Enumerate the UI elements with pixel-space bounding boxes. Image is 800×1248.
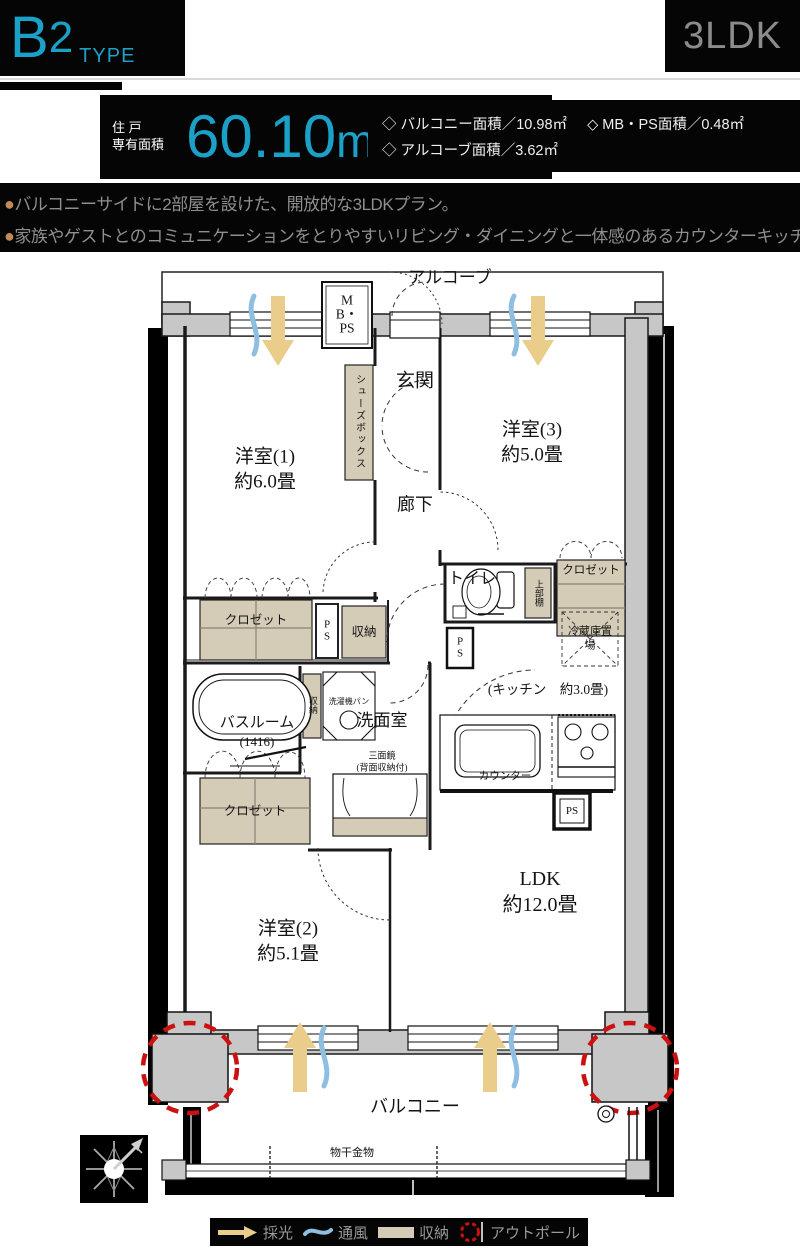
type-box: B 2 TYPE <box>0 0 185 76</box>
floorplan-svg <box>0 262 800 1212</box>
label-washroom: 洗面室 <box>357 710 408 732</box>
label-laundry-hw: 物干金物 <box>330 1146 374 1160</box>
label-toilet: トイレ <box>448 570 496 591</box>
label-shoes-box: シューズボックス <box>353 374 366 470</box>
feature-box: ●バルコニーサイドに2部屋を設けた、開放的な3LDKプラン。 ●家族やゲストとの… <box>0 183 800 252</box>
outpole-circle-icon <box>459 1220 485 1244</box>
type-box-tab <box>0 82 122 90</box>
type-num: 2 <box>49 16 73 60</box>
label-room2: 洋室(2)約5.1畳 <box>257 917 319 966</box>
legend-outpole: アウトポール <box>459 1220 580 1244</box>
floorplan: アルコーブ MB・PS シューズボックス 玄関 洋室(1)約6.0畳 洋室(3)… <box>0 262 800 1212</box>
legend-storage: 収納 <box>378 1222 449 1243</box>
label-alcove: アルコーブ <box>408 267 491 289</box>
label-storage2: 収納 <box>306 696 318 714</box>
type-main: B <box>10 9 49 67</box>
label-ldk: LDK約12.0畳 <box>503 866 578 918</box>
legend-bar: 採光 通風 収納 アウトポール <box>210 1218 588 1246</box>
label-mbps: MB・PS <box>333 294 361 337</box>
header-divider <box>0 78 800 80</box>
type-sub: TYPE <box>79 45 135 76</box>
alcove-area: ◇ アルコーブ面積／3.62㎡ <box>382 143 558 159</box>
balcony-structure <box>162 1106 657 1195</box>
balcony-area: ◇ バルコニー面積／10.98㎡ <box>382 117 567 133</box>
label-laundry-pan: 洗濯機パン <box>329 697 369 707</box>
label-corridor: 廊下 <box>397 493 433 516</box>
compass-icon <box>80 1135 148 1203</box>
label-ps3: PS <box>566 804 578 818</box>
layout-box: 3LDK <box>665 0 800 72</box>
mbps-area: ◇ MB・PS面積／0.48㎡ <box>587 117 744 133</box>
label-counter: カウンター <box>479 770 532 784</box>
feature-line-2: ●家族やゲストとのコミュニケーションをとりやすいリビング・ダイニングと一体感のあ… <box>4 221 796 253</box>
label-fridge: 冷蔵庫置場 <box>566 625 614 654</box>
vanity-icon <box>333 774 427 836</box>
label-room3: 洋室(3)約5.0畳 <box>501 418 563 467</box>
legend-daylight: 採光 <box>218 1222 293 1243</box>
label-entrance: 玄関 <box>396 370 434 395</box>
closet1-box <box>200 600 312 660</box>
legend-wind: 通風 <box>303 1222 368 1243</box>
unit-area-value: 60.10m2 <box>164 107 388 168</box>
label-storage1: 収納 <box>351 624 376 640</box>
floorplan-page: { "header": { "type_main": "B", "type_nu… <box>0 0 800 1248</box>
label-ps1: PS <box>322 619 332 642</box>
label-room1: 洋室(1)約6.0畳 <box>234 445 296 494</box>
label-kitchen: (キッチン 約3.0畳) <box>488 681 608 699</box>
drain-icon <box>598 1106 614 1122</box>
area-details-row1: ◇ バルコニー面積／10.98㎡ ◇ MB・PS面積／0.48㎡ <box>382 112 800 138</box>
label-upper-shelf: 上部棚 <box>532 580 544 607</box>
daylight-arrow-icon <box>218 1226 258 1239</box>
label-closet1: クロゼット <box>225 612 288 628</box>
wind-wave-icon <box>303 1225 333 1239</box>
label-closet3: クロゼット <box>562 564 620 579</box>
label-closet2: クロゼット <box>224 803 287 819</box>
layout-label: 3LDK <box>683 15 782 58</box>
area-details-box: ◇ バルコニー面積／10.98㎡ ◇ MB・PS面積／0.48㎡ ◇ アルコーブ… <box>368 100 800 172</box>
label-mirror: 三面鏡(背面収納付) <box>357 750 408 773</box>
label-balcony: バルコニー <box>370 1095 460 1118</box>
feature-line-1: ●バルコニーサイドに2部屋を設けた、開放的な3LDKプラン。 <box>4 189 796 221</box>
label-ps2: PS <box>455 636 465 659</box>
area-details-row2: ◇ アルコーブ面積／3.62㎡ <box>382 138 800 164</box>
unit-area-caption: 住 戸専有面積 <box>112 120 164 154</box>
label-bathroom: バスルーム(1416) <box>220 714 295 750</box>
storage-swatch-icon <box>378 1226 414 1239</box>
